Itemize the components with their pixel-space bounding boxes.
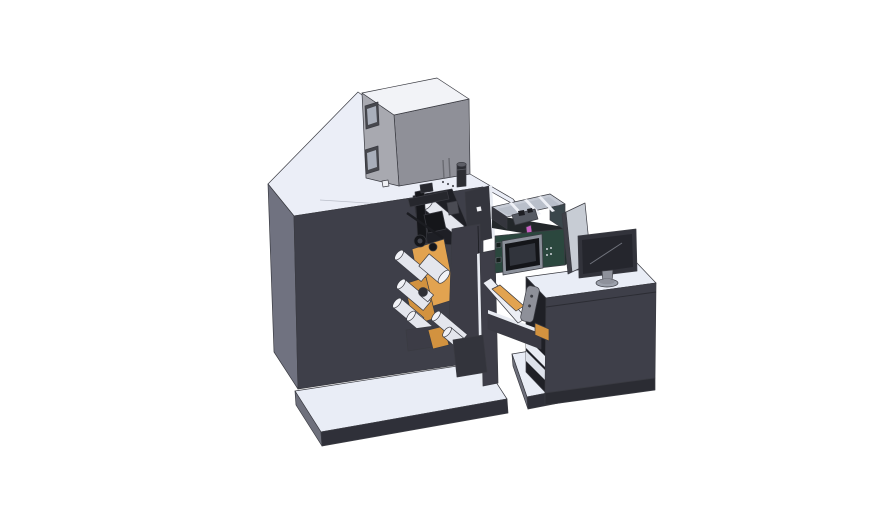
- tray-mech-bit: [518, 210, 525, 216]
- screw-dot: [442, 181, 444, 183]
- mech-roller-small: [429, 243, 437, 251]
- vent-dot: [546, 254, 548, 256]
- cabinet-vent-slot: [443, 160, 444, 179]
- screw-dot: [452, 185, 454, 187]
- monitor-stand-base-top: [600, 279, 615, 285]
- mech-head-block: [424, 211, 446, 233]
- control-unit: [495, 229, 570, 275]
- machine-illustration: [0, 0, 888, 522]
- sensor-chip: [476, 206, 482, 212]
- vent-dot: [546, 248, 548, 250]
- cad-render-canvas: [0, 0, 888, 522]
- vent-dot: [550, 253, 552, 255]
- mech-bracket: [447, 201, 459, 215]
- mech-knob-center: [418, 239, 423, 244]
- electrical-cabinet: [362, 78, 470, 187]
- monitor-screen: [582, 234, 633, 274]
- cabinet-window-glass: [367, 150, 377, 170]
- control-port: [496, 257, 501, 263]
- idler-roller-dark-cap: [419, 288, 428, 297]
- vent-cylinder-body: [457, 164, 466, 187]
- support-foot: [453, 335, 487, 377]
- cabinet-window-glass: [367, 106, 377, 125]
- screw-dot: [447, 183, 449, 185]
- cabinet-latch-chip: [382, 180, 389, 187]
- vent-cylinder-cap: [457, 162, 466, 166]
- vent-dot: [550, 247, 552, 249]
- cabinet-vent-slot: [449, 158, 450, 177]
- control-port: [496, 242, 501, 248]
- mech-top-piece: [420, 183, 433, 193]
